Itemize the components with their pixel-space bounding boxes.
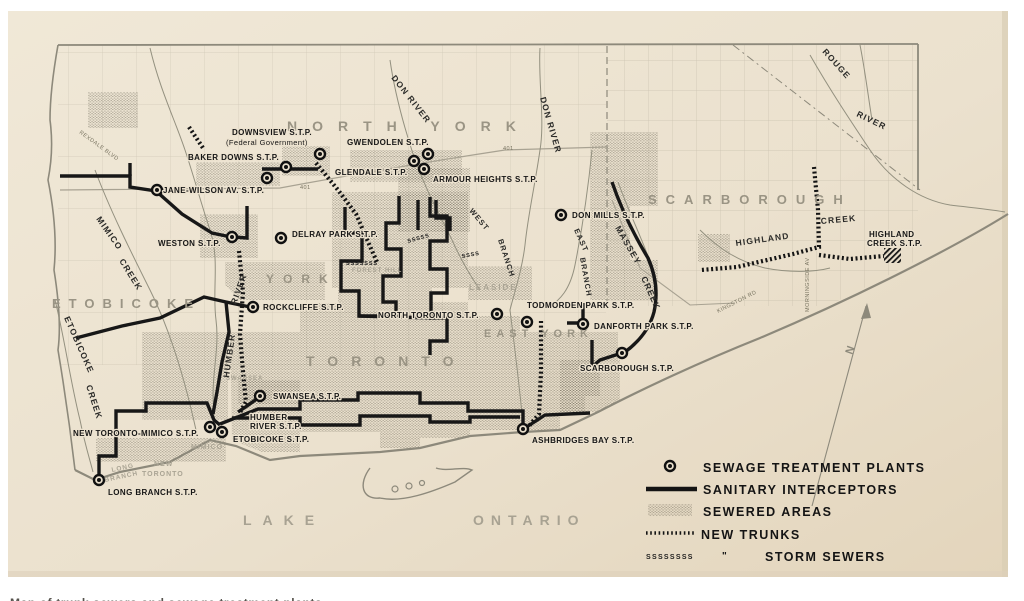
label-lake: LAKE bbox=[243, 512, 325, 528]
label-morningside-av: MORNINGSIDE AV bbox=[805, 257, 811, 312]
label-downsview-stp: DOWNSVIEW S.T.P. bbox=[232, 128, 312, 137]
label-weston-stp: WESTON S.T.P. bbox=[158, 239, 221, 248]
label-scarborough-stp: SCARBOROUGH S.T.P. bbox=[580, 364, 674, 373]
label-east-york: EAST YORK bbox=[484, 328, 593, 340]
stp-symbol-highland-creek bbox=[884, 248, 901, 263]
stp-dot-todmorden-park bbox=[522, 317, 532, 327]
label-ontario: ONTARIO bbox=[473, 512, 586, 528]
label-todmorden-park-stp: TODMORDEN PARK S.T.P. bbox=[527, 301, 635, 310]
stp-dot-baker-downs-a bbox=[281, 162, 291, 172]
stp-dot-downsview bbox=[315, 149, 325, 159]
stp-dot-ashbridges-bay bbox=[518, 424, 528, 434]
legend-storm-sewers-label: STORM SEWERS bbox=[765, 550, 886, 564]
storm-run: SSSSSSS bbox=[346, 261, 378, 267]
stp-dot-armour-heights bbox=[419, 164, 429, 174]
stp-dot-scarborough bbox=[617, 348, 627, 358]
label-toronto: TORONTO bbox=[306, 353, 467, 369]
stp-dot-gwendolen bbox=[423, 149, 433, 159]
label-york: YORK bbox=[266, 272, 337, 286]
paper-edge-right bbox=[1002, 11, 1008, 577]
label-danforth-park-stp: DANFORTH PARK S.T.P. bbox=[594, 322, 694, 331]
legend-sewered-swatch-icon bbox=[648, 504, 692, 516]
label-glendale-stp: GLENDALE S.T.P. bbox=[335, 168, 408, 177]
label-hwy-401-b: 401 bbox=[503, 146, 514, 152]
stp-dot-etobicoke bbox=[217, 427, 227, 437]
stp-dot-north-toronto bbox=[492, 309, 502, 319]
stp-dot-don-mills bbox=[556, 210, 566, 220]
label-long-branch-stp: LONG BRANCH S.T.P. bbox=[108, 488, 198, 497]
legend-ditto-mark: " bbox=[722, 551, 728, 562]
label-new-toronto-1: NEW bbox=[154, 461, 173, 468]
label-mimico-town: MIMICO bbox=[191, 444, 223, 451]
label-gwendolen-stp: GWENDOLEN S.T.P. bbox=[347, 138, 429, 147]
stp-dot-delray-park bbox=[276, 233, 286, 243]
label-armour-heights-stp: ARMOUR HEIGHTS S.T.P. bbox=[433, 175, 538, 184]
label-highland-creek-stp-2: CREEK S.T.P. bbox=[867, 239, 922, 248]
cropped-caption: Map of trunk sewers and sewage treatment… bbox=[10, 596, 322, 601]
label-ashbridges-bay-stp: ASHBRIDGES BAY S.T.P. bbox=[532, 436, 635, 445]
stp-dot-weston bbox=[227, 232, 237, 242]
stp-dot-swansea bbox=[255, 391, 265, 401]
label-north-toronto-stp: NORTH TORONTO S.T.P. bbox=[378, 311, 479, 320]
label-swansea-stp: SWANSEA S.T.P. bbox=[273, 392, 341, 401]
toronto-sewage-map: SSSSSSS SSSSS SSSS NORTH YORK SCARBOROUG… bbox=[0, 0, 1024, 601]
label-don-mills-stp: DON MILLS S.T.P. bbox=[572, 211, 645, 220]
label-new-toronto-2: TORONTO bbox=[142, 471, 184, 478]
label-rockcliffe-stp: ROCKCLIFFE S.T.P. bbox=[263, 303, 344, 312]
legend-plant-dot-icon bbox=[665, 461, 675, 471]
label-humber-river-stp-1: HUMBER bbox=[250, 413, 288, 422]
stp-dot-humber-river bbox=[205, 422, 215, 432]
label-etobicoke: ETOBICOKE bbox=[52, 296, 201, 311]
legend-storm-pattern-icon: SSSSSSSS bbox=[646, 554, 694, 561]
legend-sewage-plants-label: SEWAGE TREATMENT PLANTS bbox=[703, 461, 925, 475]
stp-dot-baker-downs-b bbox=[262, 173, 272, 183]
stp-dot-glendale bbox=[409, 156, 419, 166]
label-scarborough: SCARBOROUGH bbox=[648, 192, 852, 207]
label-swansea-town: SWANSEA bbox=[226, 376, 263, 382]
legend-new-trunks-label: NEW TRUNKS bbox=[701, 528, 801, 542]
label-baker-downs-stp: BAKER DOWNS S.T.P. bbox=[188, 153, 279, 162]
stp-dot-long-branch bbox=[94, 475, 104, 485]
label-downsview-federal: (Federal Government) bbox=[226, 138, 308, 147]
label-north-york: NORTH YORK bbox=[287, 118, 531, 134]
label-delray-park-stp: DELRAY PARK S.T.P. bbox=[292, 230, 378, 239]
label-highland-creek-stp-1: HIGHLAND bbox=[869, 230, 914, 239]
label-etobicoke-stp: ETOBICOKE S.T.P. bbox=[233, 435, 309, 444]
label-new-toronto-mimico-stp: NEW TORONTO-MIMICO S.T.P. bbox=[73, 429, 199, 438]
label-hwy-401-a: 401 bbox=[300, 185, 311, 191]
legend-sanitary-interceptors-label: SANITARY INTERCEPTORS bbox=[703, 483, 898, 497]
stp-dot-rockcliffe bbox=[248, 302, 258, 312]
stp-dot-jane-wilson bbox=[152, 185, 162, 195]
scanned-map-page: SSSSSSS SSSSS SSSS NORTH YORK SCARBOROUG… bbox=[0, 0, 1024, 601]
legend-sewered-areas-label: SEWERED AREAS bbox=[703, 505, 832, 519]
label-forest-hill: FOREST HILL bbox=[352, 268, 402, 274]
label-jane-wilson-stp: JANE-WILSON AV. S.T.P. bbox=[163, 186, 264, 195]
label-humber-river-stp-2: RIVER S.T.P. bbox=[250, 422, 302, 431]
paper-edge-bottom bbox=[8, 571, 1008, 577]
label-leaside: LEASIDE bbox=[469, 283, 518, 292]
